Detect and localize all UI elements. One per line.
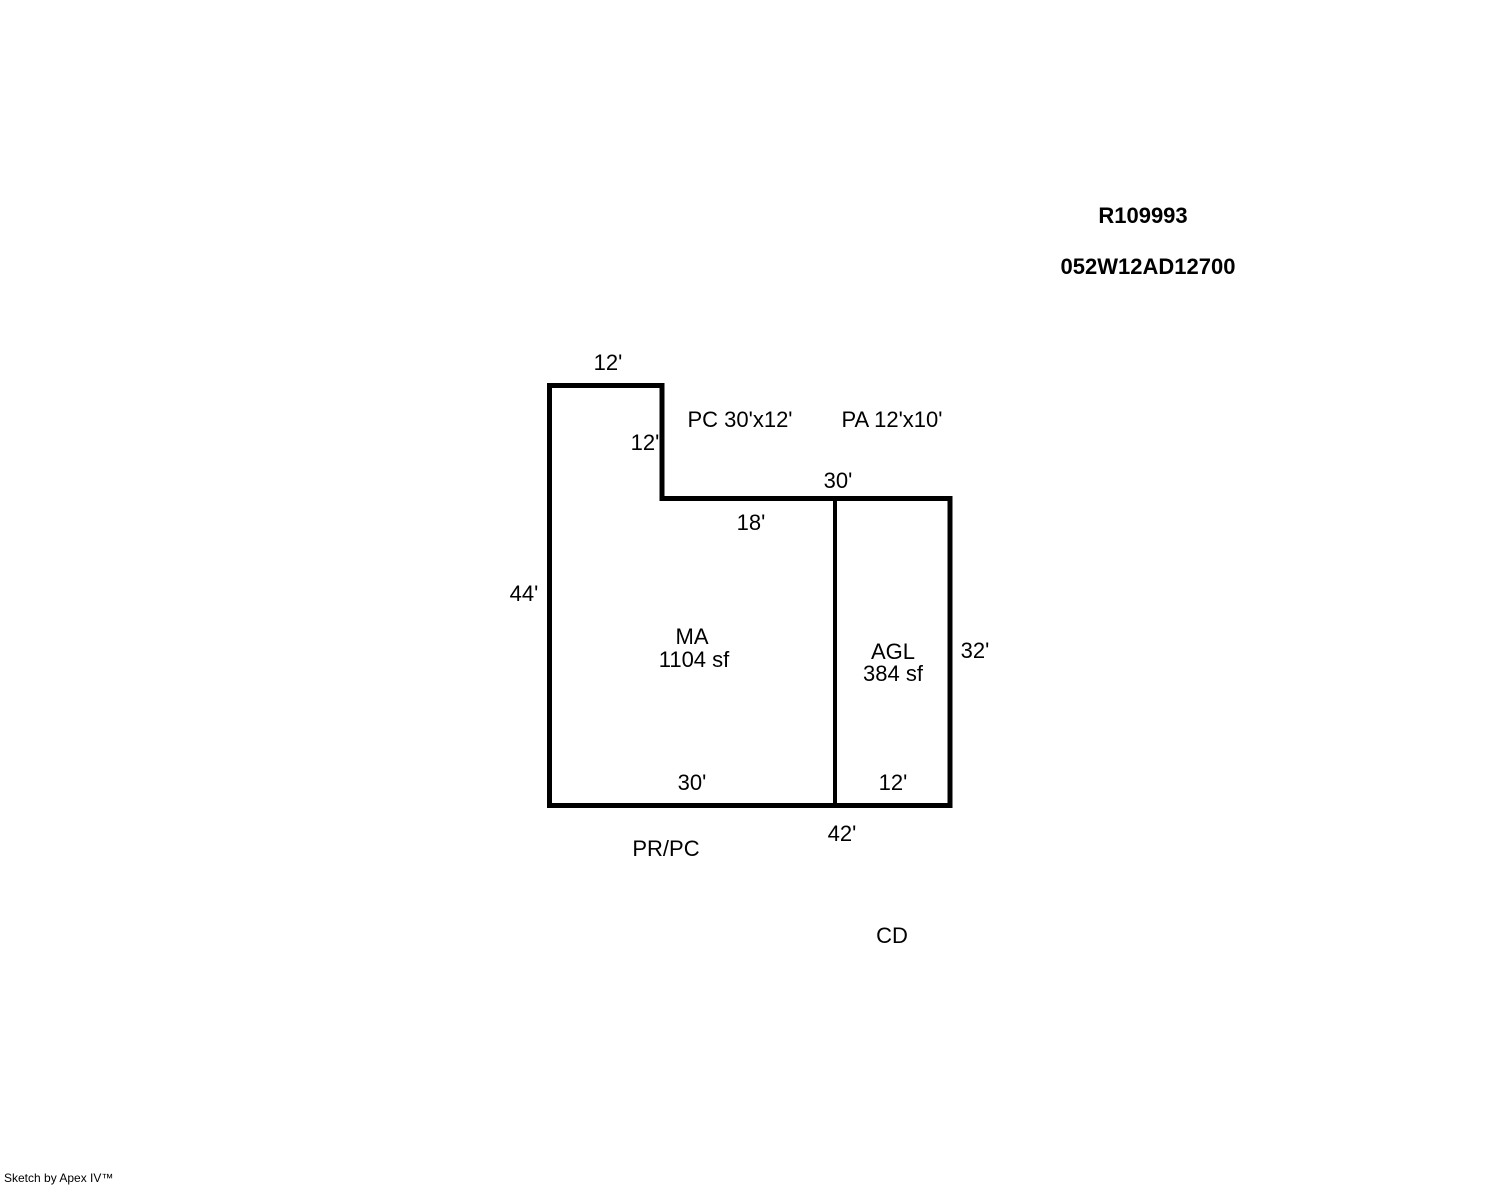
garage-area-code: AGL (871, 641, 915, 663)
dimension-left-height: 44' (510, 583, 539, 605)
parcel-number: 052W12AD12700 (1061, 256, 1236, 278)
main-area-code: MA (676, 626, 709, 648)
floorplan-outline (550, 386, 951, 806)
main-area-size: 1104 sf (659, 649, 730, 671)
dimension-mid-width: 18' (737, 512, 766, 534)
dimension-upper-width: 30' (824, 470, 853, 492)
dimension-bottom-main-width: 30' (678, 772, 707, 794)
dimension-notch-height: 12' (631, 432, 660, 454)
annotation-cd: CD (876, 925, 908, 947)
garage-area-size: 384 sf (863, 663, 923, 685)
dimension-bottom-garage-width: 12' (879, 772, 908, 794)
annotation-pc: PC 30'x12' (687, 409, 792, 431)
floorplan-sketch (0, 0, 1488, 1190)
sketch-software-credit: Sketch by Apex IV™ (4, 1172, 113, 1184)
property-sketch-page: R109993 052W12AD12700 12' 12' 30' 18' 44… (0, 0, 1488, 1190)
dimension-right-height: 32' (961, 640, 990, 662)
dimension-bottom-total-width: 42' (828, 823, 857, 845)
dimension-top-width: 12' (594, 352, 623, 374)
record-number: R109993 (1098, 205, 1187, 227)
annotation-pa: PA 12'x10' (842, 409, 943, 431)
annotation-pr-pc: PR/PC (632, 838, 699, 860)
